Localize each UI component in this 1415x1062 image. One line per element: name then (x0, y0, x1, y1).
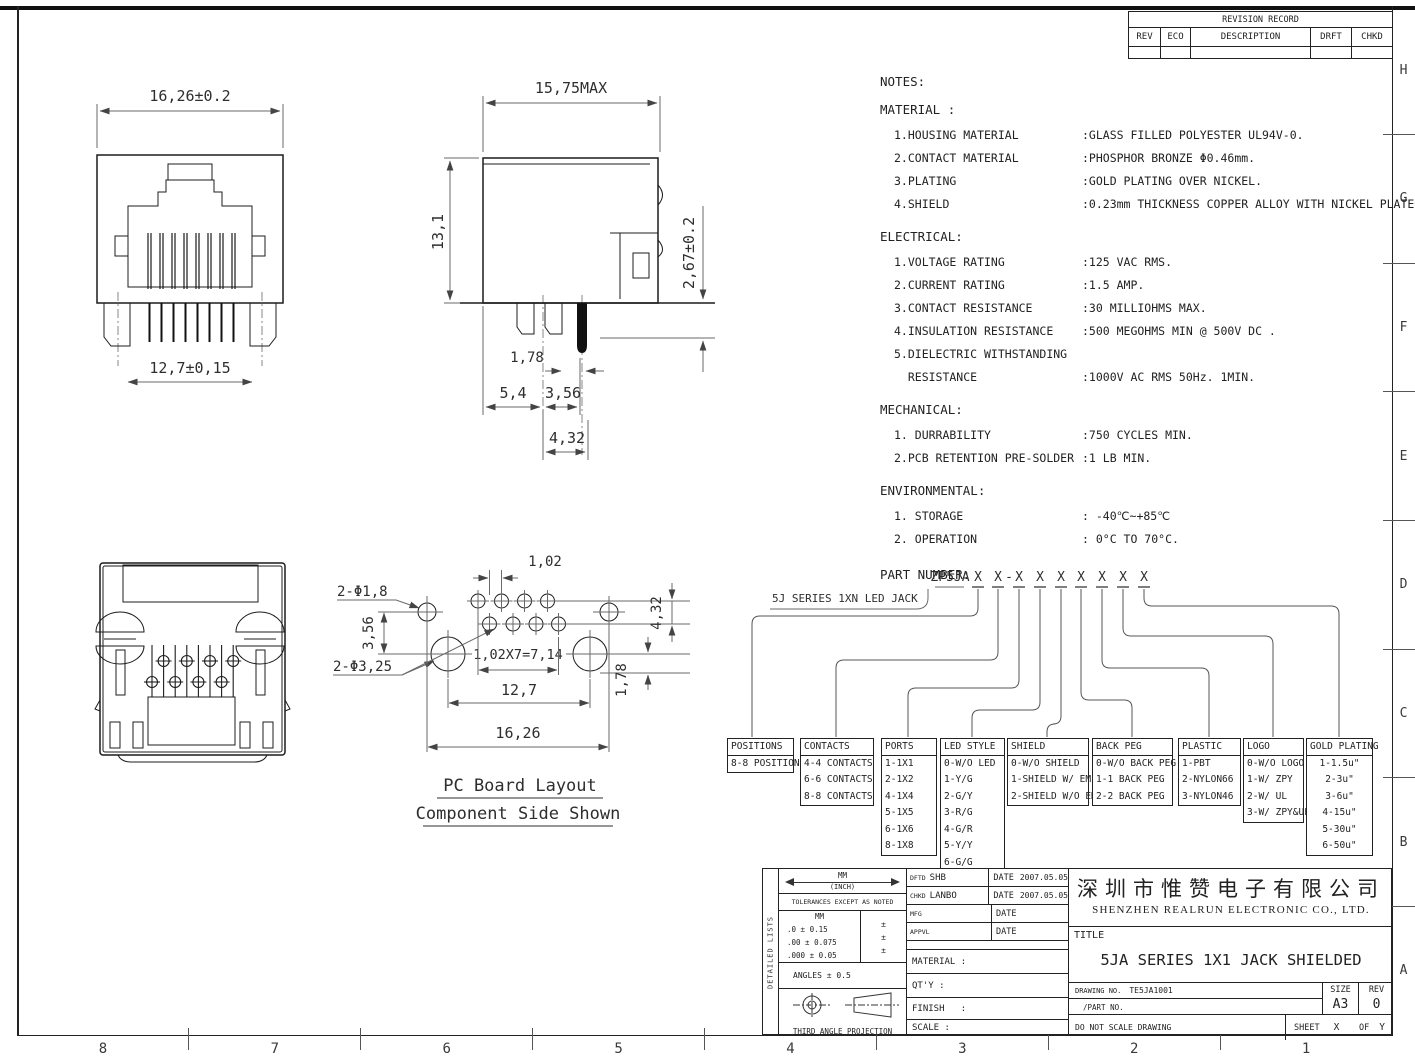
note-row: 5.DIELECTRIC WITHSTANDING (880, 343, 1400, 366)
svg-text:X: X (1015, 570, 1023, 585)
revision-record-table: REVISION RECORD REV ECO DESCRIPTION DRFT… (1128, 11, 1393, 59)
note-row: 2.PCB RETENTION PRE-SOLDER:1 LB MIN. (880, 447, 1400, 470)
part-option: 2-W/ UL (1244, 789, 1303, 806)
pcb-dimensions: 1,02 3,56 2-Φ1,8 2-Φ3,25 1,02X7=7,14 12,… (333, 554, 672, 752)
part-option: 1-SHIELD W/ EMI (1008, 772, 1088, 789)
zone-number: 7 (189, 1035, 361, 1062)
front-view-dimensions: 16,26±0.2 12,7±0,15 (97, 87, 283, 382)
svg-text:X: X (1057, 570, 1065, 585)
zone-number: 4 (705, 1035, 877, 1062)
qty-row: QT'Y : (907, 973, 1068, 997)
part-option: 2-1X2 (882, 772, 936, 789)
part-option-box-led-style: LED STYLE 0-W/O LED1-Y/G2-G/Y3-R/G4-G/R5… (940, 738, 1005, 889)
signature-row: DFTDSHB DATE2007.05.05 (907, 869, 1068, 887)
svg-text:1,02X7=7,14: 1,02X7=7,14 (473, 647, 562, 663)
title-cell: TITLE 5JA SERIES 1X1 JACK SHIELDED (1069, 927, 1393, 983)
revision-col-description: DESCRIPTION (1191, 28, 1311, 46)
svg-text:3,56: 3,56 (361, 616, 377, 650)
svg-text:4,32: 4,32 (549, 429, 585, 447)
projection-cell: THIRD ANGLE PROJECTION (779, 989, 906, 1036)
part-option: 6-6 CONTACTS (801, 772, 873, 789)
part-option: 3-NYLON46 (1179, 789, 1240, 806)
part-option: 2-G/Y (941, 789, 1004, 806)
part-option: 6-1X6 (882, 822, 936, 839)
part-option: 8-8 POSITIONS (728, 756, 793, 773)
note-row: 3.CONTACT RESISTANCE:30 MILLIOHMS MAX. (880, 297, 1400, 320)
svg-text:5J SERIES 1XN LED JACK: 5J SERIES 1XN LED JACK (772, 592, 918, 605)
side-view-dimensions: 15,75MAX 13,1 2,67±0.2 1,78 5,4 3,56 4,3… (429, 79, 703, 460)
zone-letter: A (1392, 906, 1415, 1035)
part-option: 1-W/ ZPY (1244, 772, 1303, 789)
part-number-code: ZP5JA X X - X X X X X X X 5J SERIES 1XN … (770, 570, 1150, 609)
note-row: 4.INSULATION RESISTANCE:500 MEGOHMS MIN … (880, 320, 1400, 343)
part-option: 1-1X1 (882, 756, 936, 773)
third-angle-projection-icon (779, 989, 906, 1021)
part-option: 5-Y/Y (941, 838, 1004, 855)
scale-row: SCALE : (907, 1019, 1068, 1036)
part-option: 0-W/O BACK PEG (1093, 756, 1172, 773)
zone-number: 8 (17, 1035, 189, 1062)
zone-number: 5 (533, 1035, 705, 1062)
revision-record-title: REVISION RECORD (1129, 12, 1392, 28)
svg-text:2-Φ1,8: 2-Φ1,8 (337, 584, 388, 600)
part-option-box-gold-plating: GOLD PLATING 1-1.5u"2-3u"3-6u"4-15u"5-30… (1306, 738, 1373, 856)
part-number-routing-lines (752, 589, 1339, 737)
signature-row: MFG DATE (907, 905, 1068, 923)
revision-number: 0 (1359, 997, 1394, 1015)
revision-col-eco: ECO (1161, 28, 1191, 46)
company-title-section: 深圳市惟赞电子有限公司 SHENZHEN REALRUN ELECTRONIC … (1068, 869, 1393, 1036)
revision-empty-row (1129, 47, 1392, 58)
svg-text:15,75MAX: 15,75MAX (535, 79, 607, 97)
part-option: 5-1X5 (882, 805, 936, 822)
part-option-box-logo: LOGO 0-W/O LOGO1-W/ ZPY2-W/ UL3-W/ ZPY&U… (1243, 738, 1304, 823)
pcb-layout-captions: PC Board Layout Component Side Shown (416, 776, 621, 826)
sheet-size: A3 (1323, 997, 1358, 1015)
part-option: 3-W/ ZPY&UL (1244, 805, 1303, 822)
revision-record-headers: REV ECO DESCRIPTION DRFT CHKD (1129, 28, 1392, 47)
note-row: 4.SHIELD:0.23mm THICKNESS COPPER ALLOY W… (880, 193, 1400, 216)
revision-col-drft: DRFT (1311, 28, 1352, 46)
drawing-no-cell: DRAWING NO. TE5JA1001 /PART NO. SIZE A3 … (1069, 983, 1393, 1015)
part-option: 4-1X4 (882, 789, 936, 806)
svg-text:5,4: 5,4 (499, 384, 526, 402)
sheet-total: Y (1379, 1022, 1385, 1033)
svg-text:1,02: 1,02 (528, 554, 562, 570)
part-option: 0-W/O LOGO (1244, 756, 1303, 773)
note-row: 1. STORAGE: -40℃~+85℃ (880, 505, 1400, 528)
front-view-outline (97, 155, 283, 346)
svg-text:16,26±0.2: 16,26±0.2 (149, 87, 230, 105)
drawing-number: TE5JA1001 (1129, 986, 1172, 995)
svg-text:X: X (1140, 570, 1148, 585)
part-option-box-shield: SHIELD 0-W/O SHIELD1-SHIELD W/ EMI2-SHIE… (1007, 738, 1089, 806)
part-option: 1-1 BACK PEG (1093, 772, 1172, 789)
material-row: MATERIAL : (907, 949, 1068, 973)
svg-text:1,78: 1,78 (614, 663, 630, 697)
tolerance-values-cell: MM .0 ± 0.15.00 ± 0.075.000 ± 0.05 ±±± (779, 911, 906, 963)
part-option: 2-NYLON66 (1179, 772, 1240, 789)
svg-text:-: - (1005, 570, 1013, 585)
part-option-box-contacts: CONTACTS 4-4 CONTACTS6-6 CONTACTS8-8 CON… (800, 738, 874, 806)
part-option-box-ports: PORTS 1-1X12-1X24-1X45-1X56-1X68-1X8 (881, 738, 937, 856)
side-view-drawing: 15,75MAX 13,1 2,67±0.2 1,78 5,4 3,56 4,3… (400, 75, 720, 470)
angles-cell: ANGLES ± 0.5 (779, 963, 906, 989)
rear-view-pins (144, 645, 241, 697)
sheet-number: X (1334, 1022, 1340, 1033)
notes-heading: NOTES: (880, 74, 1400, 89)
part-option: 6-50u" (1307, 838, 1372, 855)
part-option: 3-R/G (941, 805, 1004, 822)
company-name-cn: 深圳市惟赞电子有限公司 (1069, 873, 1393, 903)
units-cell: MM (INCH) (779, 869, 906, 894)
front-view-drawing: 16,26±0.2 12,7±0,15 (60, 75, 360, 400)
signature-row: CHKDLANBO DATE2007.05.05 (907, 887, 1068, 905)
title-block: DETAILED LISTS MM (INCH) TOLERANCES EXCE… (762, 868, 1392, 1035)
part-option: 5-30u" (1307, 822, 1372, 839)
zone-letter: C (1392, 649, 1415, 778)
part-option: 0-W/O LED (941, 756, 1004, 773)
note-row: 3.PLATING:GOLD PLATING OVER NICKEL. (880, 170, 1400, 193)
company-name-en: SHENZHEN REALRUN ELECTRONIC CO., LTD. (1069, 904, 1393, 916)
svg-text:ZP5JA: ZP5JA (930, 570, 969, 585)
part-option: 1-1.5u" (1307, 756, 1372, 773)
pcb-layout-drawing: 1,02 3,56 2-Φ1,8 2-Φ3,25 1,02X7=7,14 12,… (330, 550, 690, 850)
part-option-box-plastic: PLASTIC 1-PBT2-NYLON663-NYLON46 (1178, 738, 1241, 806)
svg-text:X: X (1036, 570, 1044, 585)
zone-number: 3 (876, 1035, 1048, 1062)
tolerances-heading-cell: TOLERANCES EXCEPT AS NOTED (779, 894, 906, 911)
rear-view-drawing (85, 555, 300, 770)
detailed-lists-strip: DETAILED LISTS (763, 869, 779, 1036)
svg-text:13,1: 13,1 (429, 214, 447, 250)
svg-text:PC Board Layout: PC Board Layout (443, 776, 597, 796)
part-option-box-positions: POSITIONS 8-8 POSITIONS (727, 738, 794, 773)
finish-row: FINISH : (907, 997, 1068, 1019)
border-top-line (0, 6, 1415, 10)
part-option: 4-15u" (1307, 805, 1372, 822)
part-option: 4-4 CONTACTS (801, 756, 873, 773)
note-row: 2. OPERATION: 0°C TO 70°C. (880, 528, 1400, 551)
note-row: 2.CONTACT MATERIAL:PHOSPHOR BRONZE Φ0.46… (880, 147, 1400, 170)
svg-text:16,26: 16,26 (495, 724, 540, 742)
svg-text:X: X (994, 570, 1002, 585)
part-option: 0-W/O SHIELD (1008, 756, 1088, 773)
zone-letter: B (1392, 778, 1415, 907)
revision-col-chkd: CHKD (1352, 28, 1392, 46)
svg-text:2-Φ3,25: 2-Φ3,25 (333, 659, 392, 675)
svg-text:X: X (974, 570, 982, 585)
part-option: 2-3u" (1307, 772, 1372, 789)
notes-environmental-section: ENVIRONMENTAL: 1. STORAGE: -40℃~+85℃ 2. … (880, 483, 1400, 551)
border-left-line (17, 6, 19, 1035)
svg-text:Component Side Shown: Component Side Shown (416, 804, 621, 824)
svg-text:3,56: 3,56 (545, 384, 581, 402)
note-row: 1.VOLTAGE RATING:125 VAC RMS. (880, 251, 1400, 274)
svg-text:X: X (1119, 570, 1127, 585)
svg-text:4,32: 4,32 (649, 596, 665, 630)
part-option: 1-Y/G (941, 772, 1004, 789)
front-view-pins (150, 303, 234, 342)
part-option-box-back-peg: BACK PEG 0-W/O BACK PEG1-1 BACK PEG2-2 B… (1092, 738, 1173, 806)
part-option: 8-8 CONTACTS (801, 789, 873, 806)
part-option: 2-SHIELD W/O EMI (1008, 789, 1088, 806)
signature-row: APPVL DATE (907, 923, 1068, 941)
note-row: RESISTANCE:1000V AC RMS 50Hz. 1MIN. (880, 366, 1400, 389)
part-option: 3-6u" (1307, 789, 1372, 806)
drawing-sheet: HGFEDCBA 87654321 REVISION RECORD REV EC… (0, 0, 1415, 1062)
company-cell: 深圳市惟赞电子有限公司 SHENZHEN REALRUN ELECTRONIC … (1069, 873, 1393, 927)
drawing-title: 5JA SERIES 1X1 JACK SHIELDED (1069, 951, 1393, 969)
zone-number: 6 (361, 1035, 533, 1062)
signature-section: DFTDSHB DATE2007.05.05 CHKDLANBO DATE200… (906, 869, 1068, 1036)
svg-text:1,78: 1,78 (510, 350, 544, 366)
svg-text:12,7±0,15: 12,7±0,15 (149, 359, 230, 377)
svg-text:12,7: 12,7 (501, 681, 537, 699)
svg-text:X: X (1098, 570, 1106, 585)
note-row: 2.CURRENT RATING:1.5 AMP. (880, 274, 1400, 297)
notes-material-section: MATERIAL : 1.HOUSING MATERIAL:GLASS FILL… (880, 102, 1400, 216)
notes-block: NOTES: MATERIAL : 1.HOUSING MATERIAL:GLA… (880, 74, 1400, 582)
svg-text:X: X (1077, 570, 1085, 585)
svg-text:2,67±0.2: 2,67±0.2 (680, 217, 698, 289)
note-row: 1.HOUSING MATERIAL:GLASS FILLED POLYESTE… (880, 124, 1400, 147)
part-option: 4-G/R (941, 822, 1004, 839)
sheet-cell: DO NOT SCALE DRAWING SHEET X OF Y (1069, 1015, 1393, 1040)
part-option: 1-PBT (1179, 756, 1240, 773)
note-row: 1. DURRABILITY:750 CYCLES MIN. (880, 424, 1400, 447)
front-view-contacts (148, 233, 235, 289)
notes-mechanical-section: MECHANICAL: 1. DURRABILITY:750 CYCLES MI… (880, 402, 1400, 470)
notes-electrical-section: ELECTRICAL: 1.VOLTAGE RATING:125 VAC RMS… (880, 229, 1400, 389)
revision-col-rev: REV (1129, 28, 1161, 46)
part-option: 2-2 BACK PEG (1093, 789, 1172, 806)
side-view-outline (460, 158, 715, 353)
part-number-diagram: ZP5JA X X - X X X X X X X 5J SERIES 1XN … (725, 560, 1395, 745)
part-option: 8-1X8 (882, 838, 936, 855)
